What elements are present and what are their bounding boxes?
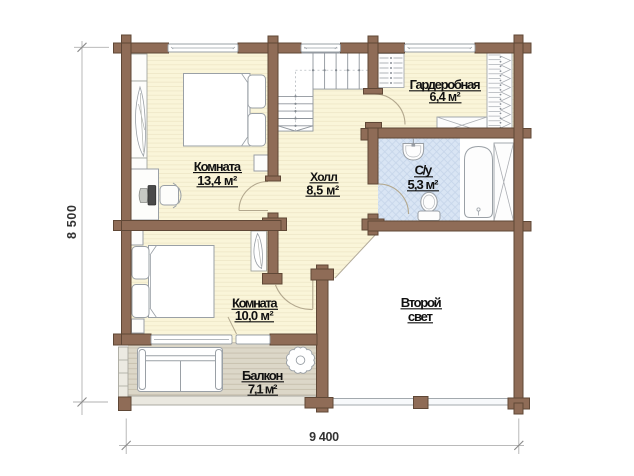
svg-text:Холл: Холл	[310, 170, 338, 184]
svg-text:7,1 м²: 7,1 м²	[248, 382, 278, 397]
svg-text:Второй: Второй	[401, 295, 442, 310]
svg-text:С/у: С/у	[415, 162, 433, 177]
svg-text:5,3 м²: 5,3 м²	[408, 177, 440, 192]
svg-text:6,4 м²: 6,4 м²	[430, 90, 461, 104]
svg-text:10,0 м²: 10,0 м²	[235, 308, 274, 323]
svg-text:13,4 м²: 13,4 м²	[197, 173, 238, 188]
svg-text:свет: свет	[408, 309, 433, 324]
svg-text:Комната: Комната	[194, 159, 242, 174]
svg-text:8,5 м²: 8,5 м²	[306, 184, 339, 198]
svg-text:9 400: 9 400	[309, 430, 339, 444]
svg-text:8 500: 8 500	[65, 205, 79, 239]
